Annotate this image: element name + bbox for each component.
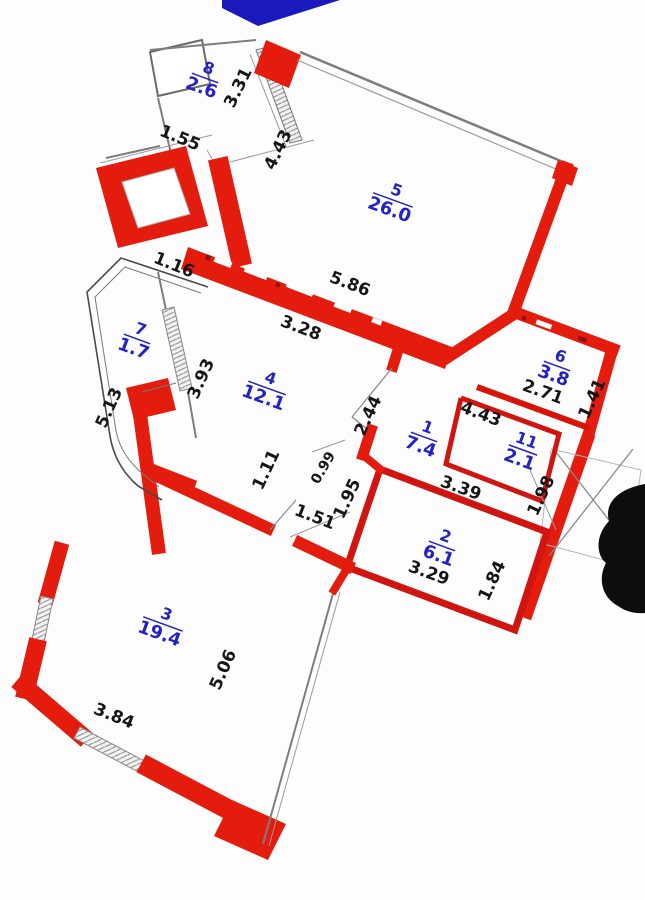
dim-label: 0.99: [308, 449, 339, 487]
room-label-7: 7 1.7: [115, 315, 159, 364]
dim-label: 5.13: [92, 385, 127, 431]
room-area: 1.7: [115, 334, 152, 365]
room5-top-glazing: [300, 52, 568, 164]
redaction-blob: [599, 484, 645, 613]
dim-label: 1.41: [575, 376, 611, 422]
dim-label: 1.95: [330, 476, 366, 522]
room-number: 1: [419, 416, 436, 438]
wall-corner-block: [254, 40, 301, 88]
room-number: 5: [388, 179, 405, 201]
room-area: 2.6: [183, 73, 220, 104]
room6-top-wall: [514, 312, 613, 349]
room-label-1: 1 7.4: [402, 413, 446, 462]
dim-label: 2.44: [351, 393, 387, 440]
main-cross-wall: [181, 247, 452, 369]
room-label-3: 3 19.4: [135, 598, 191, 652]
door-swing-line: [270, 500, 296, 530]
room5-left-wall: [220, 168, 240, 256]
room-label-4: 4 12.1: [239, 362, 295, 416]
dim-label: 5.86: [327, 267, 373, 301]
room-5-walls: [220, 40, 578, 308]
room-area: 26.0: [365, 192, 414, 227]
room-area: 19.4: [135, 616, 184, 651]
room5-right-wall: [515, 168, 566, 308]
room-number: 6: [552, 345, 569, 367]
dim-label: 5.06: [206, 647, 241, 693]
dim-label: 4.43: [260, 127, 296, 173]
room3-right-wall-inner: [269, 592, 340, 846]
room-label-11: 11 2.1: [501, 426, 545, 475]
dim-label: 4.43: [458, 397, 504, 431]
floor-plan-page: 8 2.6 5 26.0 7 1.7 4 12.1 6 3.8 1 7.4 11…: [0, 0, 645, 900]
dim-label: 3.84: [91, 699, 138, 733]
room-number: 4: [262, 367, 279, 389]
room5-top-glazing-inner: [297, 60, 563, 172]
dim-label: 3.31: [220, 65, 256, 111]
dim-label: 1.84: [475, 558, 511, 605]
floor-plan-drawing: 8 2.6 5 26.0 7 1.7 4 12.1 6 3.8 1 7.4 11…: [0, 0, 645, 900]
blue-edge-artifact: [222, 0, 340, 26]
hall-top-wall: [448, 312, 517, 357]
dim-label: 1.11: [249, 447, 285, 493]
room-number: 7: [132, 318, 149, 340]
room-label-5: 5 26.0: [365, 174, 421, 228]
room-area: 12.1: [239, 380, 288, 415]
dim-extension-line: [312, 440, 345, 452]
dim-label: 1.51: [292, 500, 338, 534]
room3-right-wall: [263, 590, 334, 844]
room-3-walls: [24, 550, 348, 860]
room-number: 3: [158, 603, 175, 625]
room-area: 7.4: [402, 432, 439, 463]
room-number: 2: [437, 525, 454, 547]
left-mid-walls: [126, 378, 190, 547]
